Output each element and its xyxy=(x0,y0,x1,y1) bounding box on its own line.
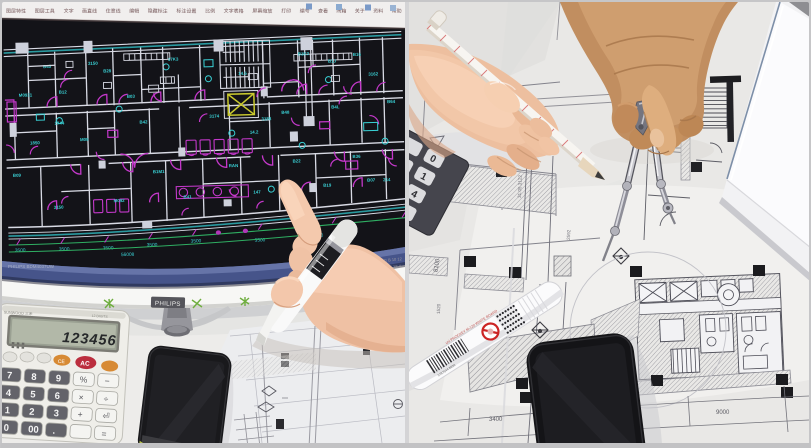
svg-text:17K3: 17K3 xyxy=(168,57,179,62)
svg-text:3400: 3400 xyxy=(489,417,503,423)
svg-text:文字: 文字 xyxy=(64,8,74,15)
svg-text:7: 7 xyxy=(7,370,13,381)
svg-text:1744: 1744 xyxy=(54,121,64,126)
svg-text:B16: B16 xyxy=(353,52,362,57)
svg-text:3150: 3150 xyxy=(54,205,64,210)
svg-text:B22: B22 xyxy=(293,158,302,163)
svg-text:比例: 比例 xyxy=(205,8,215,15)
svg-text:B28: B28 xyxy=(103,68,112,73)
svg-text:=: = xyxy=(101,429,107,439)
svg-text:1850: 1850 xyxy=(30,140,40,145)
svg-text:3150: 3150 xyxy=(88,61,98,66)
svg-text:资料: 资料 xyxy=(373,8,383,15)
svg-text:3162: 3162 xyxy=(368,71,378,76)
svg-text:B45: B45 xyxy=(43,64,52,69)
svg-text:31.05.3122: 31.05.3122 xyxy=(517,174,523,198)
svg-text:关于: 关于 xyxy=(355,8,365,15)
svg-text:B1J: B1J xyxy=(328,58,337,63)
svg-text:3174: 3174 xyxy=(209,113,219,118)
svg-text:隐藏标注: 隐藏标注 xyxy=(148,8,168,15)
svg-text:文字表格: 文字表格 xyxy=(224,8,244,15)
svg-text:14.2: 14.2 xyxy=(250,129,259,134)
svg-text:B42: B42 xyxy=(139,119,148,124)
svg-text:00: 00 xyxy=(28,424,39,436)
svg-text:CE: CE xyxy=(58,359,66,365)
svg-text:8: 8 xyxy=(31,372,37,383)
svg-text:PHILIPS BDM4037UW: PHILIPS BDM4037UW xyxy=(8,264,55,269)
svg-text:RAN: RAN xyxy=(229,163,239,168)
svg-text:1520: 1520 xyxy=(436,303,441,314)
svg-text:屏幕缩放: 屏幕缩放 xyxy=(252,8,272,15)
svg-text:14.5: 14.5 xyxy=(238,71,247,76)
svg-text:M0921: M0921 xyxy=(19,92,33,97)
svg-text:3500: 3500 xyxy=(59,246,70,252)
svg-text:−: − xyxy=(104,376,110,386)
svg-text:PHILIPS: PHILIPS xyxy=(155,300,181,308)
svg-text:214: 214 xyxy=(383,177,391,182)
svg-text:2592: 2592 xyxy=(566,229,571,240)
svg-text:B09: B09 xyxy=(13,173,22,178)
svg-text:M09: M09 xyxy=(80,137,89,142)
svg-text:住意线: 住意线 xyxy=(106,8,121,15)
svg-text:0: 0 xyxy=(3,423,9,434)
svg-text:+: + xyxy=(77,409,83,419)
svg-text:3188: 3188 xyxy=(261,116,271,121)
svg-text:打印: 打印 xyxy=(281,8,291,15)
svg-text:6: 6 xyxy=(54,391,60,402)
svg-text:图层工具: 图层工具 xyxy=(35,9,55,15)
svg-text:M092: M092 xyxy=(113,198,125,203)
svg-text:画直线: 画直线 xyxy=(82,8,97,15)
svg-text:B48: B48 xyxy=(281,110,290,115)
svg-text:3: 3 xyxy=(53,408,59,419)
svg-text:B64: B64 xyxy=(387,99,396,104)
svg-text:B41: B41 xyxy=(183,194,192,199)
svg-text:2: 2 xyxy=(29,407,35,418)
svg-text:B1M1: B1M1 xyxy=(153,169,165,174)
svg-text:56008: 56008 xyxy=(121,252,135,258)
svg-text:B1K3: B1K3 xyxy=(298,51,310,56)
svg-text:B03: B03 xyxy=(127,94,136,99)
svg-text:编辑: 编辑 xyxy=(129,8,139,15)
svg-text:B19: B19 xyxy=(323,183,332,188)
svg-text:3500: 3500 xyxy=(15,248,26,254)
svg-text:9000: 9000 xyxy=(716,410,730,416)
svg-text:×: × xyxy=(78,392,84,402)
svg-text:3500: 3500 xyxy=(147,242,158,248)
svg-text:查看: 查看 xyxy=(318,8,328,15)
svg-text:%: % xyxy=(79,374,88,384)
svg-text:B36: B36 xyxy=(352,154,361,159)
svg-text:147: 147 xyxy=(253,189,261,194)
svg-text:图层特性: 图层特性 xyxy=(6,8,26,15)
svg-text:B07: B07 xyxy=(367,177,376,182)
svg-text:B4L: B4L xyxy=(331,104,340,109)
svg-text:B12: B12 xyxy=(59,89,68,94)
svg-text:9: 9 xyxy=(55,373,61,384)
svg-text:标注设置: 标注设置 xyxy=(176,8,196,15)
svg-text:AC: AC xyxy=(80,360,90,368)
svg-text:123456: 123456 xyxy=(62,330,117,349)
